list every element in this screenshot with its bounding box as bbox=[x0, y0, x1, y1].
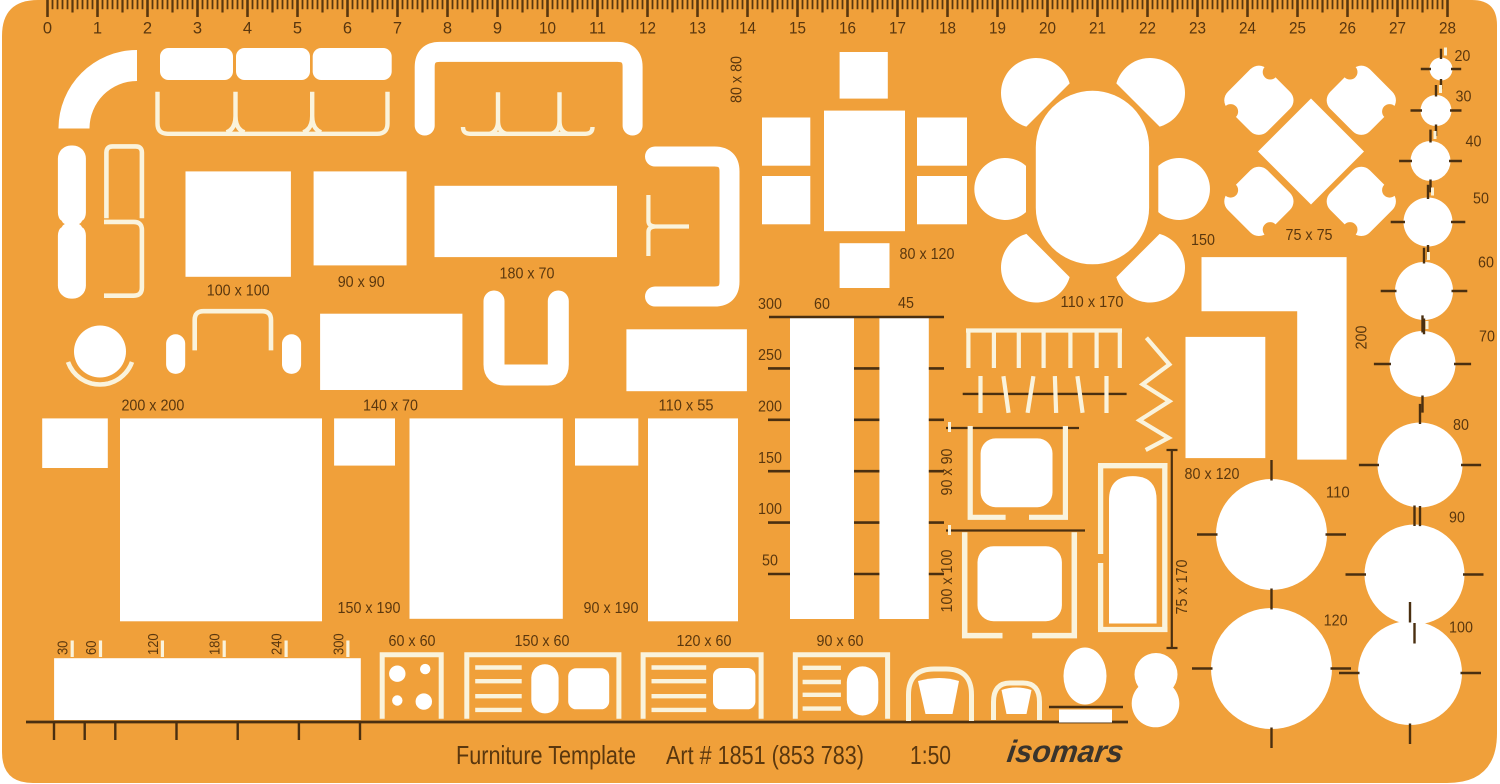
svg-text:26: 26 bbox=[1339, 19, 1356, 38]
svg-text:240: 240 bbox=[270, 633, 286, 655]
svg-text:45: 45 bbox=[898, 295, 914, 312]
svg-text:isomars: isomars bbox=[1005, 734, 1126, 769]
svg-text:90: 90 bbox=[1449, 510, 1465, 527]
svg-text:180 x 70: 180 x 70 bbox=[500, 266, 555, 283]
svg-text:Art # 1851 (853 783): Art # 1851 (853 783) bbox=[666, 740, 864, 770]
svg-text:30: 30 bbox=[56, 641, 72, 655]
svg-text:40: 40 bbox=[1466, 134, 1482, 151]
svg-text:22: 22 bbox=[1139, 19, 1156, 38]
svg-text:120 x 60: 120 x 60 bbox=[677, 633, 732, 650]
svg-text:23: 23 bbox=[1189, 19, 1206, 38]
svg-text:90 x 60: 90 x 60 bbox=[817, 633, 864, 650]
svg-text:1:50: 1:50 bbox=[910, 740, 951, 770]
svg-text:100: 100 bbox=[758, 501, 782, 518]
svg-text:20: 20 bbox=[1039, 19, 1056, 38]
svg-text:16: 16 bbox=[839, 19, 856, 38]
svg-text:200 x 200: 200 x 200 bbox=[121, 398, 184, 415]
svg-text:28: 28 bbox=[1439, 19, 1456, 38]
svg-text:110 x 55: 110 x 55 bbox=[659, 398, 714, 415]
svg-text:25: 25 bbox=[1289, 19, 1306, 38]
svg-text:80 x 80: 80 x 80 bbox=[729, 56, 746, 103]
svg-text:90 x 90: 90 x 90 bbox=[939, 448, 956, 495]
svg-text:1: 1 bbox=[93, 19, 102, 38]
svg-text:120: 120 bbox=[146, 633, 162, 655]
svg-text:200: 200 bbox=[758, 398, 782, 415]
svg-text:6: 6 bbox=[343, 19, 352, 38]
svg-text:27: 27 bbox=[1389, 19, 1406, 38]
svg-text:150 x 190: 150 x 190 bbox=[338, 600, 401, 617]
svg-text:5: 5 bbox=[293, 19, 302, 38]
svg-text:90 x 90: 90 x 90 bbox=[338, 274, 385, 291]
svg-text:21: 21 bbox=[1089, 19, 1106, 38]
svg-text:Furniture Template: Furniture Template bbox=[456, 740, 636, 770]
svg-text:90 x 190: 90 x 190 bbox=[584, 600, 639, 617]
svg-text:14: 14 bbox=[739, 19, 756, 38]
svg-text:60: 60 bbox=[84, 641, 100, 655]
svg-text:7: 7 bbox=[393, 19, 402, 38]
svg-text:70: 70 bbox=[1479, 329, 1495, 346]
svg-text:30: 30 bbox=[1456, 89, 1472, 106]
svg-text:75 x 170: 75 x 170 bbox=[1174, 559, 1191, 614]
svg-text:19: 19 bbox=[989, 19, 1006, 38]
svg-text:150: 150 bbox=[1191, 232, 1215, 249]
svg-text:80 x 120: 80 x 120 bbox=[900, 246, 955, 263]
svg-text:100 x 100: 100 x 100 bbox=[939, 549, 956, 612]
svg-text:9: 9 bbox=[493, 19, 502, 38]
svg-text:24: 24 bbox=[1239, 19, 1256, 38]
svg-text:250: 250 bbox=[758, 347, 782, 364]
svg-text:120: 120 bbox=[1324, 613, 1348, 630]
svg-text:4: 4 bbox=[243, 19, 252, 38]
svg-text:110 x 170: 110 x 170 bbox=[1061, 294, 1124, 311]
svg-text:100: 100 bbox=[1449, 620, 1473, 637]
svg-text:15: 15 bbox=[789, 19, 806, 38]
svg-text:17: 17 bbox=[889, 19, 906, 38]
svg-text:60 x 60: 60 x 60 bbox=[389, 633, 436, 650]
svg-text:3: 3 bbox=[193, 19, 202, 38]
svg-text:10: 10 bbox=[539, 19, 556, 38]
svg-text:80: 80 bbox=[1453, 417, 1469, 434]
svg-text:110: 110 bbox=[1326, 485, 1350, 502]
svg-text:60: 60 bbox=[1478, 255, 1494, 272]
svg-text:80 x 120: 80 x 120 bbox=[1185, 466, 1240, 483]
svg-text:8: 8 bbox=[443, 19, 452, 38]
svg-text:18: 18 bbox=[939, 19, 956, 38]
svg-text:140 x 70: 140 x 70 bbox=[363, 398, 418, 415]
svg-text:100 x 100: 100 x 100 bbox=[207, 283, 270, 300]
svg-text:11: 11 bbox=[589, 19, 606, 38]
svg-text:60: 60 bbox=[814, 296, 830, 313]
svg-text:300: 300 bbox=[758, 296, 782, 313]
svg-text:2: 2 bbox=[143, 19, 152, 38]
svg-text:13: 13 bbox=[689, 19, 706, 38]
svg-text:300: 300 bbox=[331, 633, 347, 655]
svg-text:12: 12 bbox=[639, 19, 656, 38]
svg-text:180: 180 bbox=[208, 633, 224, 655]
svg-text:75 x 75: 75 x 75 bbox=[1286, 227, 1333, 244]
svg-text:150: 150 bbox=[758, 450, 782, 467]
svg-text:50: 50 bbox=[762, 553, 778, 570]
svg-text:200: 200 bbox=[1354, 325, 1371, 349]
svg-text:150 x 60: 150 x 60 bbox=[515, 633, 570, 650]
svg-text:20: 20 bbox=[1454, 48, 1470, 65]
svg-text:50: 50 bbox=[1473, 191, 1489, 208]
svg-text:0: 0 bbox=[43, 19, 52, 38]
